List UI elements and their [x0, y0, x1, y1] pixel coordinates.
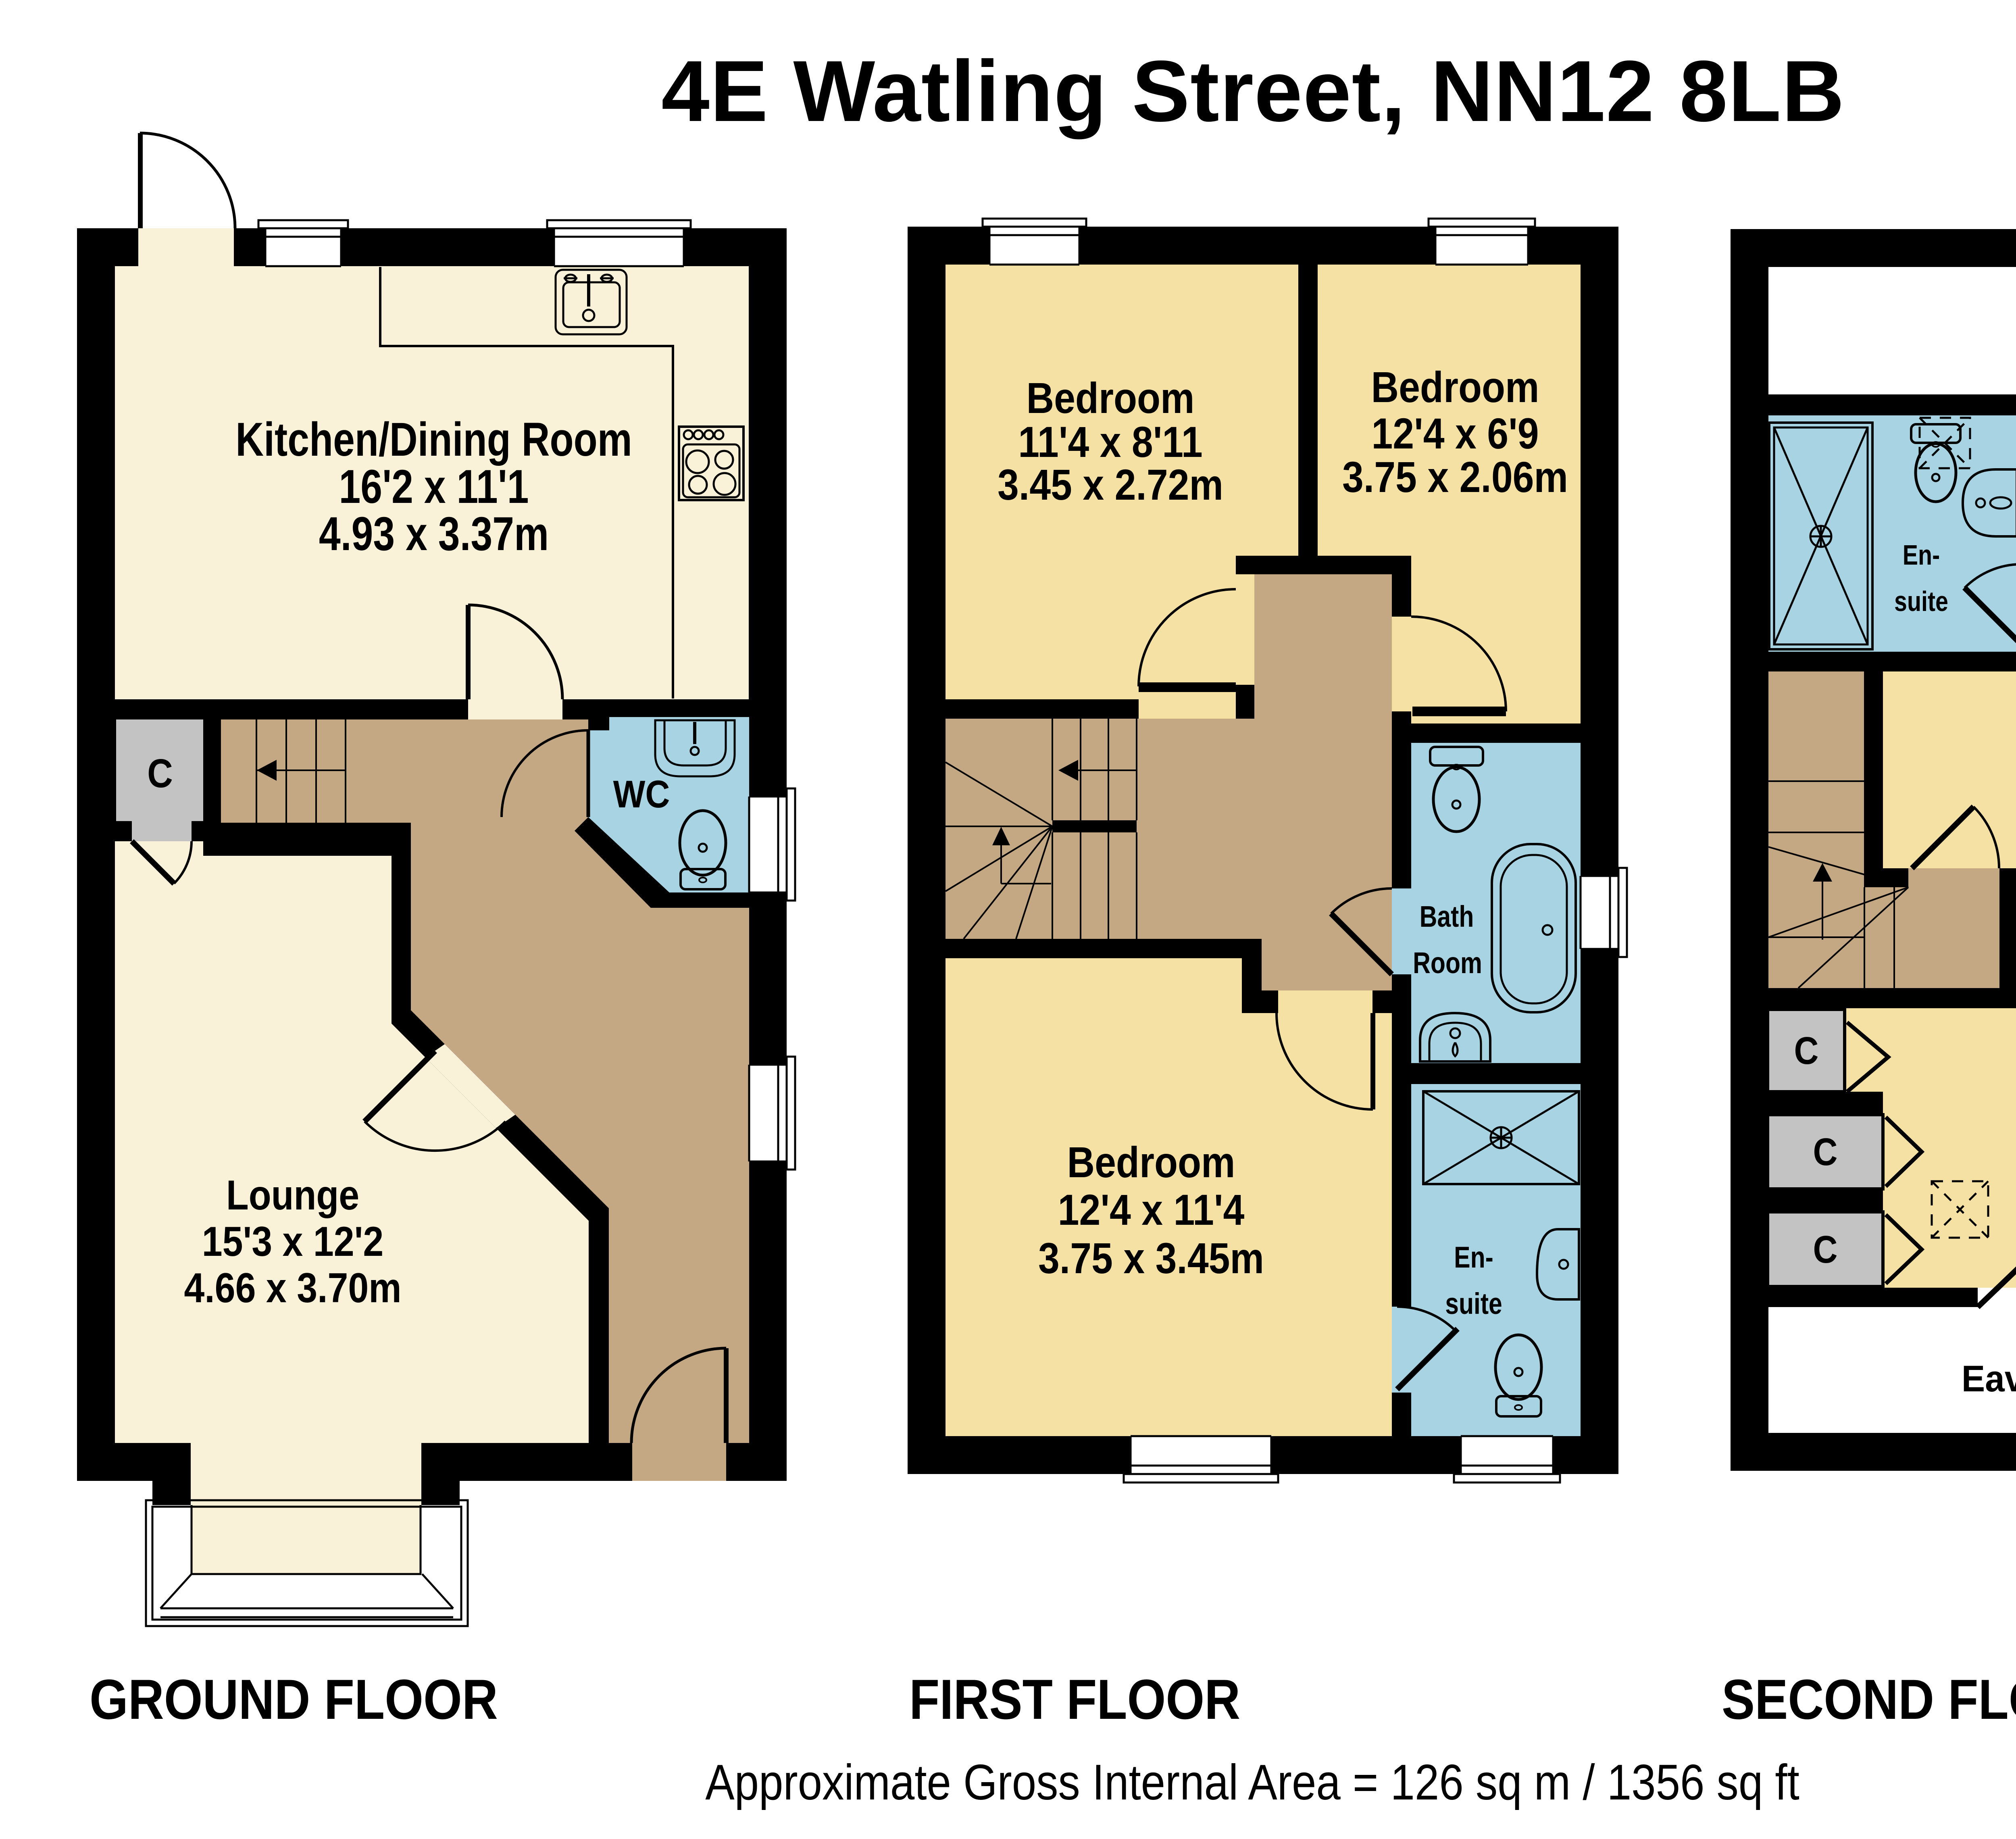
svg-text:Bedroom: Bedroom — [1371, 363, 1539, 411]
svg-text:4E Watling Street, NN12 8LB: 4E Watling Street, NN12 8LB — [661, 42, 1845, 140]
svg-text:4.93 x 3.37m: 4.93 x 3.37m — [319, 507, 549, 560]
svg-text:11'4 x 8'11: 11'4 x 8'11 — [1018, 417, 1202, 466]
svg-text:Room: Room — [1413, 947, 1482, 980]
svg-text:GROUND FLOOR: GROUND FLOOR — [90, 1668, 498, 1731]
svg-text:C: C — [1813, 1130, 1837, 1174]
svg-text:12'4 x 11'4: 12'4 x 11'4 — [1058, 1185, 1245, 1234]
svg-text:C: C — [1794, 1029, 1818, 1072]
svg-text:En-: En- — [1903, 539, 1940, 571]
svg-text:Lounge: Lounge — [226, 1172, 359, 1219]
svg-text:16'2 x 11'1: 16'2 x 11'1 — [339, 460, 529, 513]
svg-text:3.75 x 2.06m: 3.75 x 2.06m — [1342, 452, 1568, 501]
svg-text:Bedroom: Bedroom — [1026, 373, 1194, 422]
svg-text:En-: En- — [1454, 1241, 1493, 1274]
svg-text:Kitchen/Dining Room: Kitchen/Dining Room — [235, 413, 632, 466]
svg-text:3.75 x 3.45m: 3.75 x 3.45m — [1038, 1234, 1264, 1282]
svg-text:suite: suite — [1894, 586, 1948, 617]
svg-text:15'3 x 12'2: 15'3 x 12'2 — [202, 1218, 384, 1265]
svg-text:12'4 x 6'9: 12'4 x 6'9 — [1371, 409, 1539, 458]
svg-text:3.45 x 2.72m: 3.45 x 2.72m — [998, 460, 1223, 509]
svg-text:4.66 x 3.70m: 4.66 x 3.70m — [184, 1264, 401, 1311]
svg-text:Bedroom: Bedroom — [1067, 1138, 1235, 1186]
svg-text:C: C — [147, 751, 173, 796]
svg-text:Eaves Store: Eaves Store — [1962, 1358, 2016, 1400]
svg-text:FIRST FLOOR: FIRST FLOOR — [909, 1668, 1240, 1731]
svg-text:C: C — [1813, 1228, 1837, 1271]
svg-text:Approximate Gross Internal Are: Approximate Gross Internal Area = 126 sq… — [705, 1754, 1799, 1810]
svg-text:WC: WC — [613, 773, 670, 816]
svg-text:Bath: Bath — [1420, 900, 1474, 933]
svg-text:SECOND FLOOR: SECOND FLOOR — [1722, 1668, 2016, 1731]
svg-text:suite: suite — [1445, 1287, 1502, 1320]
